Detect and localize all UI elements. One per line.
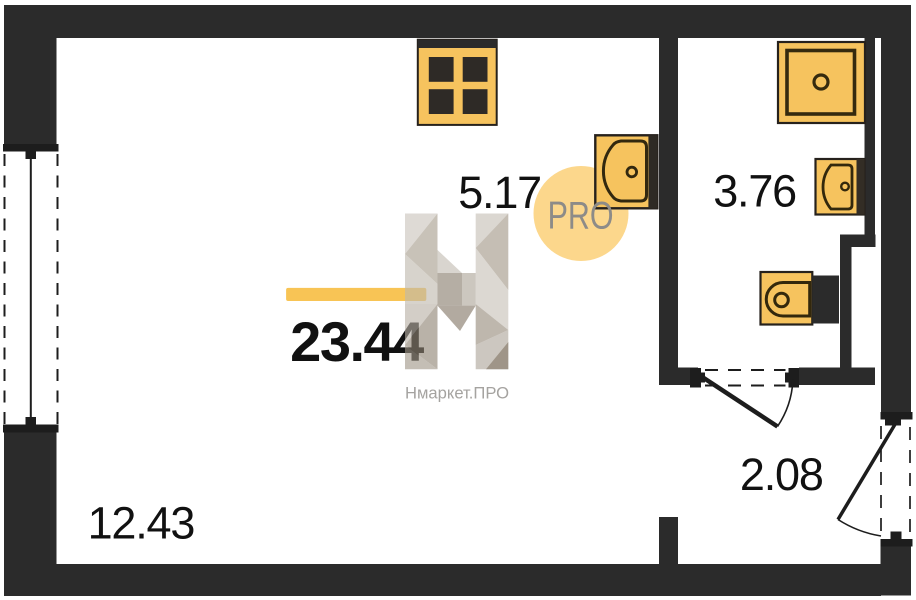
svg-text:12.43: 12.43 (88, 497, 195, 548)
svg-text:2.08: 2.08 (740, 449, 823, 500)
svg-text:23.44: 23.44 (290, 310, 424, 373)
svg-text:5.17: 5.17 (458, 167, 541, 218)
svg-text:Нмаркет.ПРО: Нмаркет.ПРО (405, 384, 509, 403)
svg-text:3.76: 3.76 (713, 166, 796, 217)
svg-text:PRO: PRO (548, 195, 614, 238)
